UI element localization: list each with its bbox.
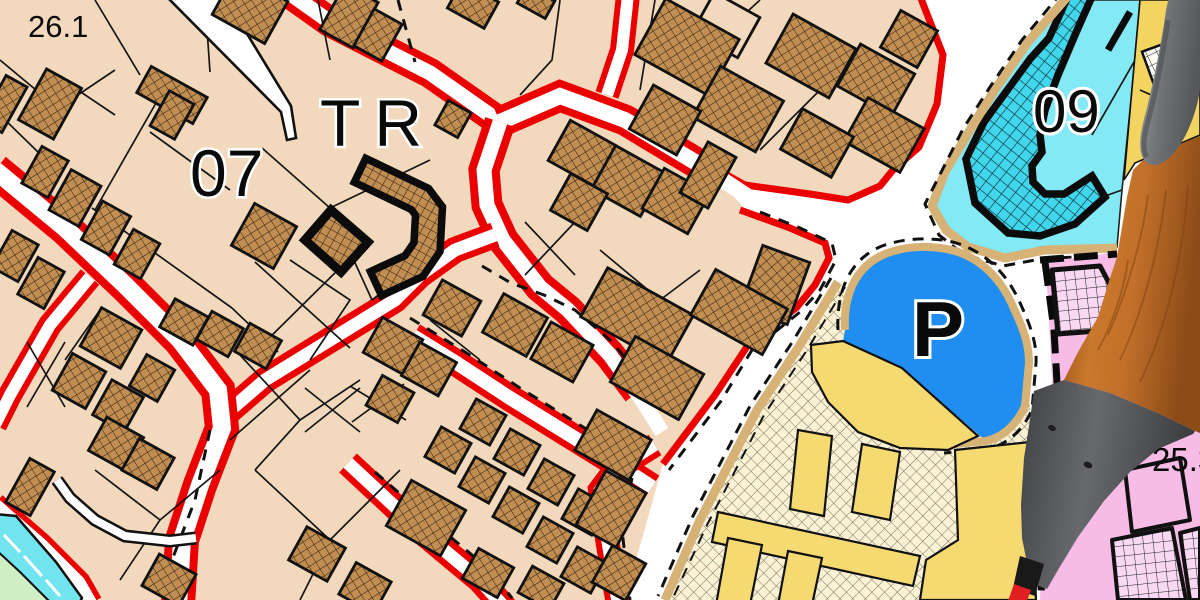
svg-text:09: 09: [1033, 78, 1100, 145]
svg-text:P: P: [912, 285, 964, 373]
svg-text:TR: TR: [320, 86, 436, 160]
svg-text:07: 07: [190, 136, 263, 210]
svg-text:26.1: 26.1: [28, 9, 88, 44]
